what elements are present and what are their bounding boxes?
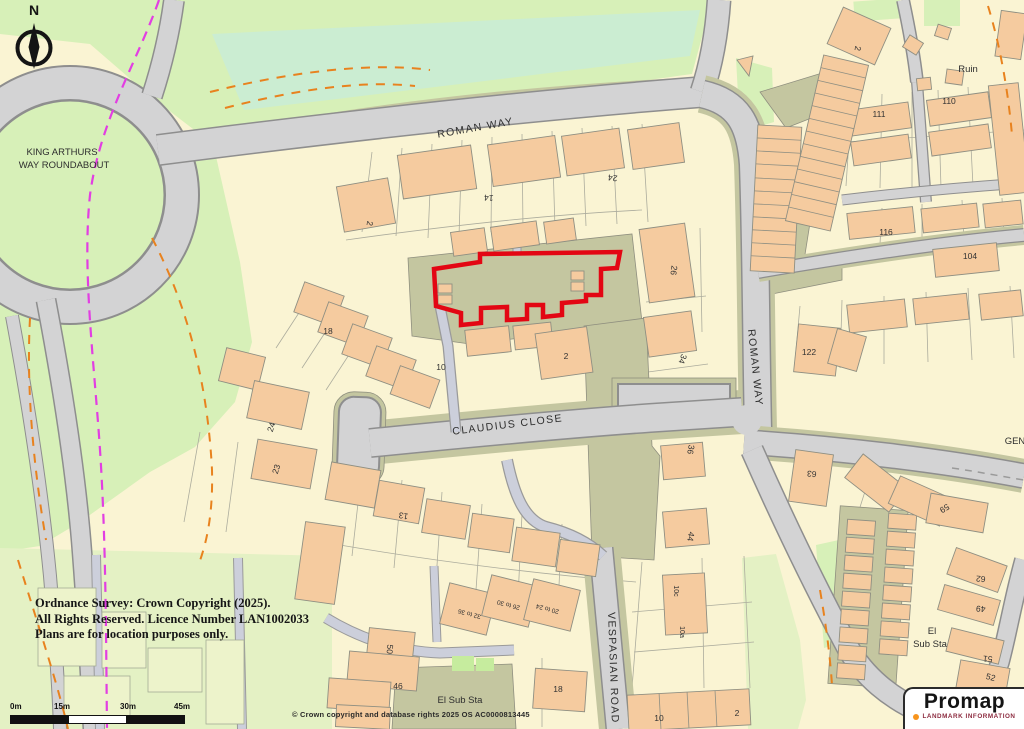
copyright-notice: Ordnance Survey: Crown Copyright (2025).… xyxy=(35,596,309,643)
scale-label: 45m xyxy=(174,702,190,711)
house-number: 18 xyxy=(323,326,333,336)
house-number: 36 xyxy=(685,444,697,455)
scale-segment xyxy=(11,716,69,723)
house-number: 104 xyxy=(963,251,977,261)
house-number: 111 xyxy=(873,109,886,119)
copyright-line: All Rights Reserved. Licence Number LAN1… xyxy=(35,612,309,628)
scale-segment xyxy=(126,716,184,723)
map-canvas: ROMAN WAYROMAN WAYCLAUDIUS CLOSEVESPASIA… xyxy=(0,0,1024,729)
compass-rose: N xyxy=(4,2,64,70)
house-number: 116 xyxy=(879,227,893,237)
copyright-line: Ordnance Survey: Crown Copyright (2025). xyxy=(35,596,309,612)
area-label: El xyxy=(928,626,936,637)
house-number: 51 xyxy=(982,654,993,665)
house-number: 44 xyxy=(685,531,697,542)
compass-icon xyxy=(4,10,64,70)
scale-segment xyxy=(69,716,126,723)
house-number: 50 xyxy=(385,644,396,655)
area-label: WAY ROUNDABOUT xyxy=(19,160,110,171)
house-number: 14 xyxy=(483,193,494,204)
copyright-line: Plans are for location purposes only. xyxy=(35,627,309,643)
logo-dot-icon xyxy=(913,714,919,720)
promap-tagline: LANDMARK INFORMATION xyxy=(922,713,1015,720)
house-number: 10c xyxy=(672,585,679,597)
scale-label: 0m xyxy=(10,702,22,711)
area-label: Sub Sta xyxy=(913,639,948,650)
house-number: 122 xyxy=(802,347,816,357)
house-number: 10 xyxy=(436,362,446,372)
area-label: El Sub Sta xyxy=(438,695,484,706)
house-number: 18 xyxy=(553,684,563,694)
house-number: 26 xyxy=(668,265,679,276)
house-number: 10 xyxy=(654,713,664,723)
scale-label: 15m xyxy=(54,702,70,711)
scale-label: 30m xyxy=(120,702,136,711)
house-number: 49 xyxy=(975,604,986,615)
area-label: GEN xyxy=(1005,436,1024,447)
area-label: KING ARTHURS xyxy=(26,147,97,158)
house-number: 2 xyxy=(735,708,740,718)
house-number: 46 xyxy=(393,681,403,691)
scale-bar: 0m 15m 30m 45m xyxy=(8,702,188,726)
promap-brand: Promap xyxy=(905,691,1024,713)
house-number: 2 xyxy=(564,351,569,361)
promap-logo: Promap LANDMARK INFORMATION xyxy=(903,687,1024,729)
house-number: 10a xyxy=(678,626,685,638)
house-number: 62 xyxy=(975,574,986,585)
house-number: 24 xyxy=(607,172,618,183)
scale-bar-graphic xyxy=(10,715,185,724)
house-number: 63 xyxy=(806,469,817,480)
os-attribution: © Crown copyright and database rights 20… xyxy=(292,710,530,719)
house-number: 110 xyxy=(942,96,956,106)
substation-greens xyxy=(452,656,494,671)
house-number: 13 xyxy=(398,510,409,522)
area-label: Ruin xyxy=(958,64,978,75)
